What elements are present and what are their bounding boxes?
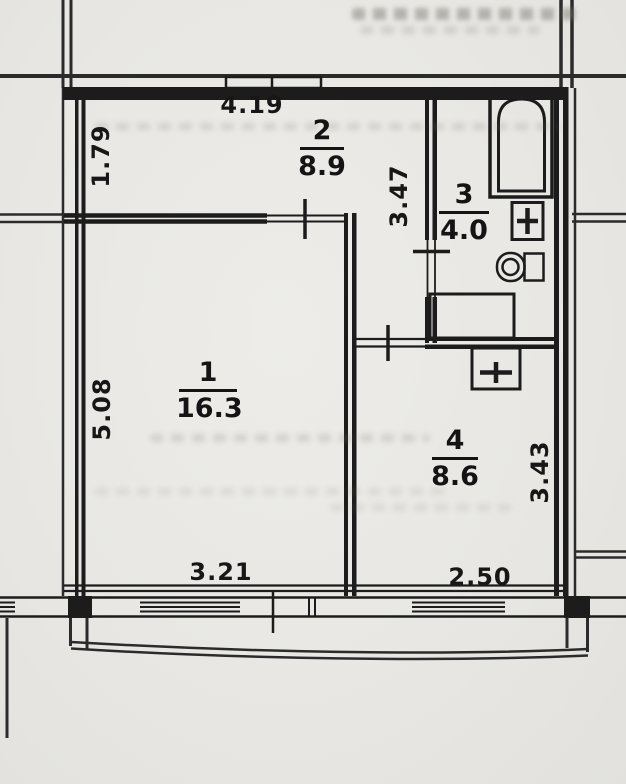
dimension-room1-left: 5.08 (88, 377, 116, 440)
room4-door-opening (356, 325, 425, 361)
bleedthrough-artifact (352, 8, 580, 20)
fraction-bar (432, 457, 478, 460)
room-area: 4.0 (436, 216, 492, 246)
dimension-top-width: 4.19 (220, 91, 283, 119)
window-wall (0, 586, 626, 634)
fraction-bar (179, 389, 237, 392)
right-wall-inner-line (554, 87, 559, 596)
fraction-bar (300, 147, 344, 150)
window-room1 (140, 603, 240, 612)
room-area: 8.6 (424, 462, 486, 492)
bleedthrough-artifact (95, 488, 450, 495)
window-room4 (412, 603, 505, 612)
bleedthrough-artifact (150, 434, 430, 442)
bathtub (490, 92, 552, 197)
dimension-corridor: 3.47 (385, 164, 413, 227)
vent-shaft-box (226, 77, 321, 88)
grid-lines (0, 0, 626, 738)
dimension-room2-left: 1.79 (87, 124, 115, 187)
room-number: 1 (176, 358, 240, 388)
room-4-label: 4 8.6 (424, 426, 486, 492)
room-1-label: 1 16.3 (176, 358, 240, 424)
room1-door-opening (267, 199, 346, 239)
room-area: 16.3 (176, 394, 240, 424)
room-area: 8.9 (292, 152, 352, 182)
left-wall-outer-line (75, 87, 79, 596)
bleedthrough-artifact (330, 504, 520, 511)
dimension-bottom-left: 3.21 (189, 558, 252, 586)
balcony-outline (71, 618, 589, 659)
fraction-bar (439, 211, 489, 214)
dimension-room4-right: 3.43 (526, 440, 554, 503)
toilet (497, 253, 544, 281)
room-3-label: 3 4.0 (436, 180, 492, 246)
washing-machine (430, 294, 514, 338)
right-wall-outer-line (563, 87, 569, 596)
dimension-bottom-right: 2.50 (448, 563, 511, 591)
bleedthrough-artifact (360, 26, 540, 34)
left-wall-inner-line (82, 87, 86, 596)
bathroom-sink (512, 203, 543, 240)
room3-door-opening (413, 240, 450, 297)
wall-pier-left (68, 596, 92, 618)
room-number: 3 (436, 180, 492, 210)
room-2-label: 2 8.9 (292, 116, 352, 182)
window-left-edge (0, 603, 15, 612)
floor-plan-sheet: 1 16.3 2 8.9 3 4.0 4 8.6 4.19 1.79 3.47 … (0, 0, 626, 784)
room-number: 4 (424, 426, 486, 456)
room-number: 2 (292, 116, 352, 146)
wall-pier-right (564, 596, 590, 618)
kitchen-sink (472, 348, 520, 389)
